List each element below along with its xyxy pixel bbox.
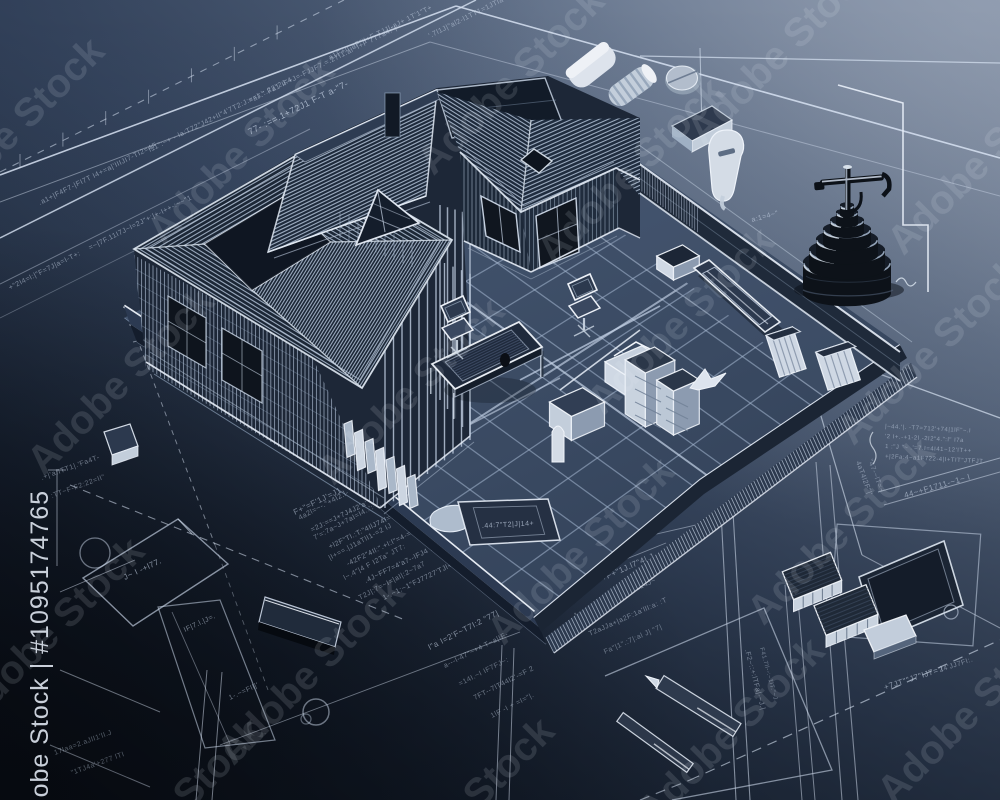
svg-text:Adobe Stock | #1095174765: Adobe Stock | #1095174765 (26, 490, 54, 800)
